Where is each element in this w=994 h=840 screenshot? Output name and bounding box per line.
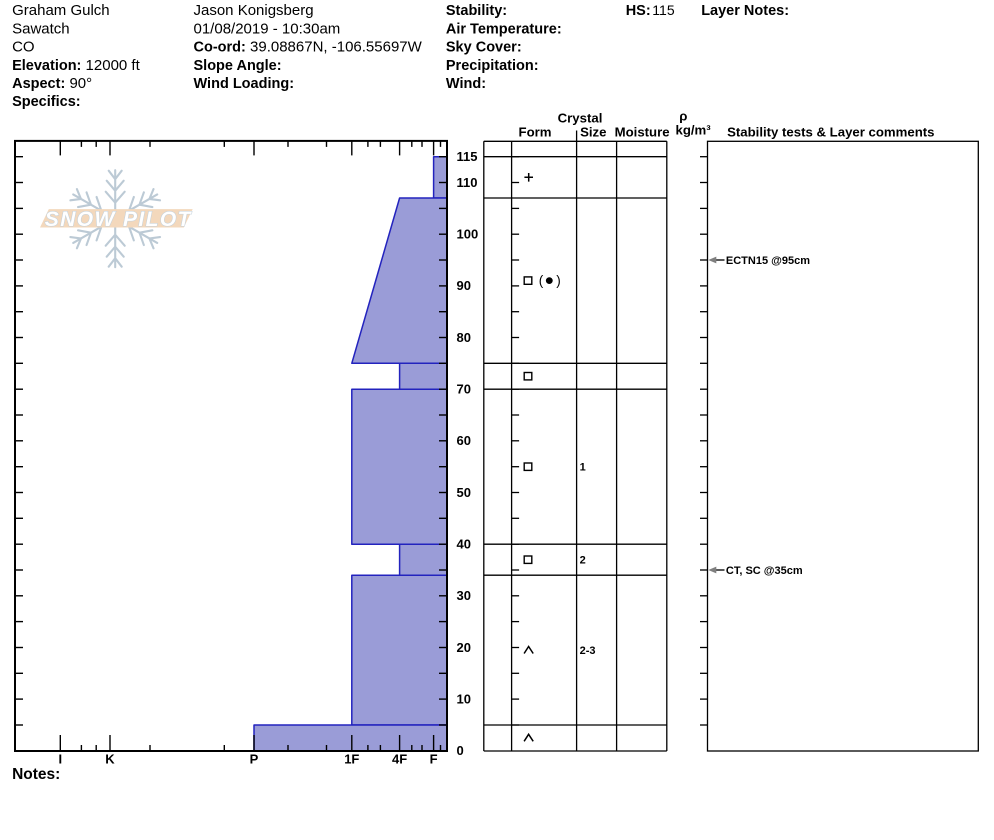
- svg-text:Slope Angle:: Slope Angle:: [194, 58, 282, 74]
- svg-text:Notes:: Notes:: [12, 766, 60, 783]
- svg-text:Form: Form: [519, 125, 552, 140]
- svg-text:ρ: ρ: [679, 109, 687, 124]
- svg-text:40: 40: [457, 537, 471, 552]
- svg-text:Elevation: 12000 ft: Elevation: 12000 ft: [12, 57, 141, 74]
- svg-text:0: 0: [457, 743, 464, 758]
- svg-text:kg/m³: kg/m³: [676, 123, 712, 138]
- svg-text:Size: Size: [580, 125, 606, 140]
- svg-text:Crystal: Crystal: [558, 110, 603, 125]
- svg-text:Moisture: Moisture: [615, 125, 670, 140]
- svg-text:I: I: [58, 752, 62, 767]
- svg-text:50: 50: [457, 485, 471, 500]
- svg-text:Wind:: Wind:: [446, 76, 486, 92]
- svg-text:115: 115: [457, 149, 478, 164]
- svg-text:100: 100: [457, 227, 479, 242]
- svg-text:2-3: 2-3: [580, 645, 596, 657]
- svg-text:1F: 1F: [344, 752, 359, 767]
- svg-text:CO: CO: [12, 39, 34, 56]
- svg-text:110: 110: [457, 175, 478, 190]
- svg-text:90: 90: [457, 278, 471, 293]
- svg-text:Specifics:: Specifics:: [12, 94, 81, 110]
- svg-text:Aspect: 90°: Aspect: 90°: [12, 75, 92, 92]
- svg-text:Air Temperature:: Air Temperature:: [446, 21, 562, 37]
- svg-text:Stability tests & Layer commen: Stability tests & Layer comments: [727, 125, 934, 140]
- svg-text:P: P: [250, 752, 259, 767]
- svg-text:F: F: [430, 752, 438, 767]
- svg-text:SNOW PILOT: SNOW PILOT: [45, 208, 193, 231]
- svg-text:Graham Gulch: Graham Gulch: [12, 2, 110, 19]
- svg-text:115: 115: [652, 2, 675, 18]
- svg-text:Sawatch: Sawatch: [12, 20, 70, 37]
- svg-text:01/08/2019 - 10:30am: 01/08/2019 - 10:30am: [194, 20, 341, 37]
- svg-text:80: 80: [457, 330, 471, 345]
- svg-text:Wind Loading:: Wind Loading:: [194, 76, 295, 92]
- svg-text:(: (: [539, 273, 544, 288]
- svg-text:Layer Notes:: Layer Notes:: [701, 3, 789, 19]
- svg-text:CT, SC @35cm: CT, SC @35cm: [726, 565, 803, 577]
- svg-text:HS:: HS:: [626, 3, 651, 19]
- svg-text:1: 1: [580, 462, 586, 474]
- svg-text:4F: 4F: [392, 752, 407, 767]
- svg-text:ECTN15 @95cm: ECTN15 @95cm: [726, 255, 810, 267]
- svg-text:Co-ord: 39.08867N, -106.55697W: Co-ord: 39.08867N, -106.55697W: [194, 39, 423, 56]
- svg-text:10: 10: [457, 691, 471, 706]
- svg-text:60: 60: [457, 433, 471, 448]
- svg-text:Stability:: Stability:: [446, 3, 507, 19]
- svg-text:Precipitation:: Precipitation:: [446, 58, 539, 74]
- svg-text:2: 2: [580, 555, 586, 567]
- svg-text:70: 70: [457, 382, 471, 397]
- svg-text:Sky Cover:: Sky Cover:: [446, 40, 522, 56]
- svg-text:K: K: [105, 752, 115, 767]
- svg-text:Jason Konigsberg: Jason Konigsberg: [194, 2, 314, 19]
- svg-text:): ): [556, 273, 561, 288]
- svg-text:20: 20: [457, 640, 471, 655]
- svg-text:30: 30: [457, 588, 471, 603]
